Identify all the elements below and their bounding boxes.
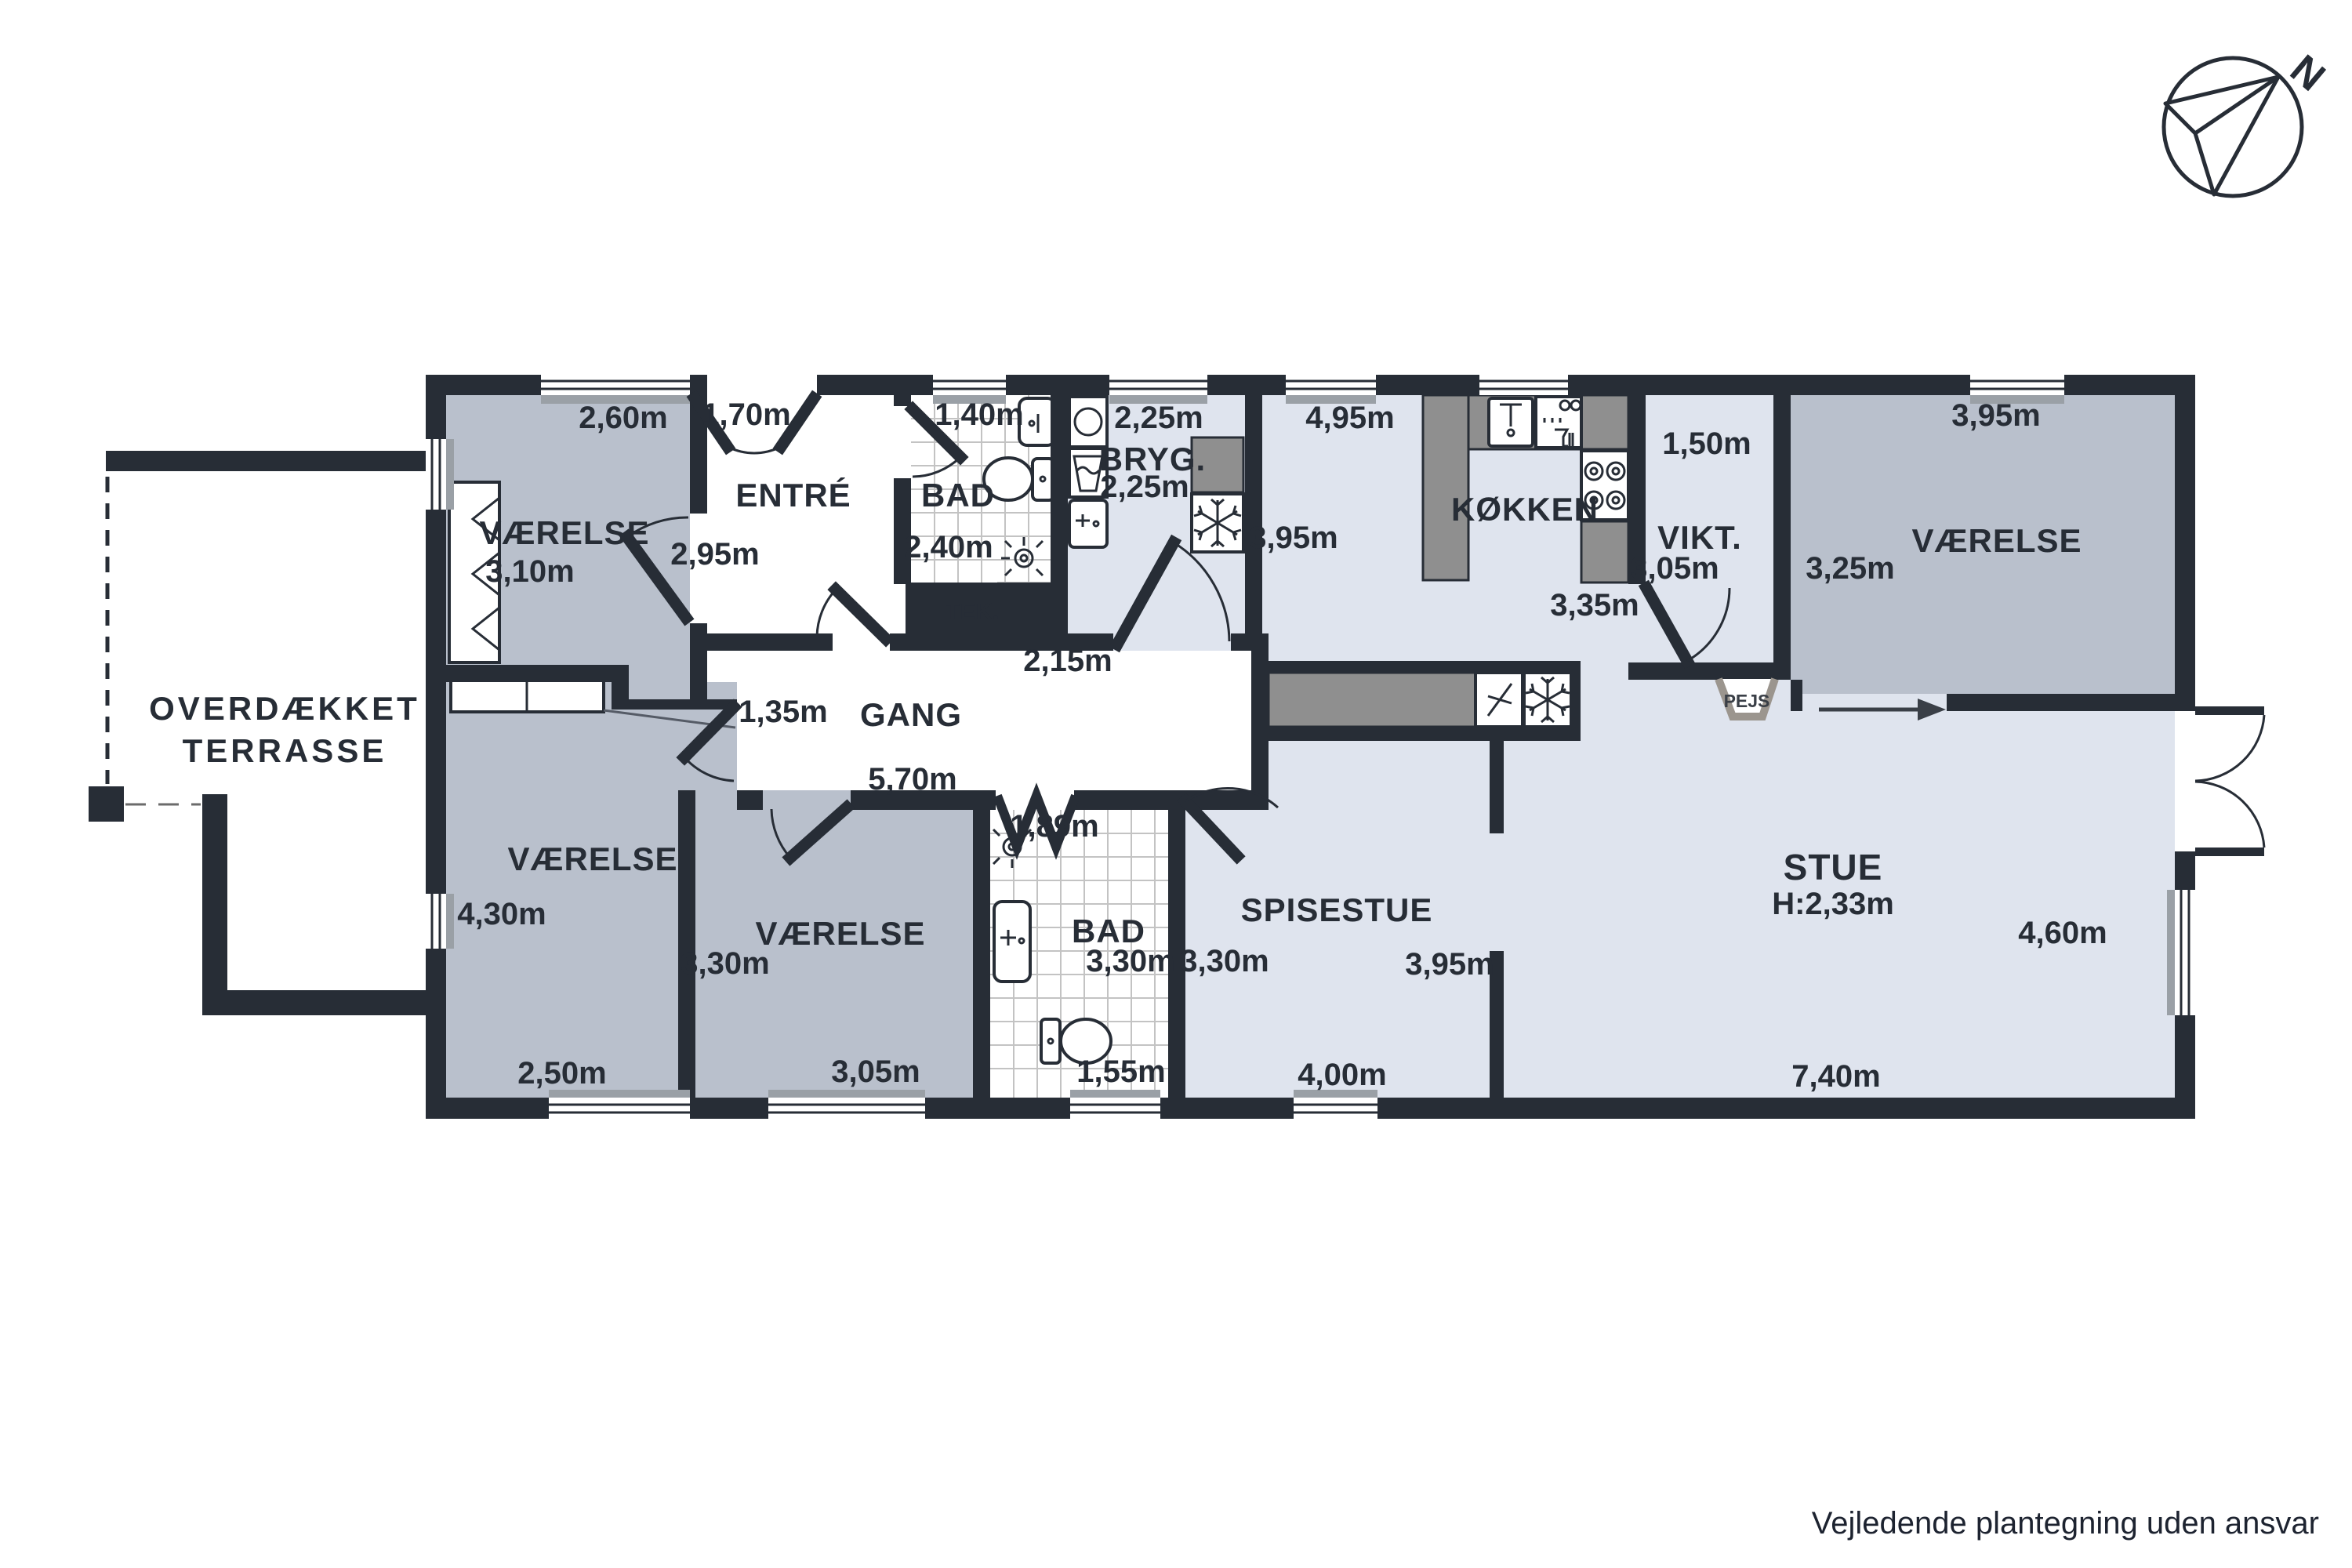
spisestue-left-dim: 3,30m xyxy=(1180,944,1269,978)
bad-bottom-h: 3,30m xyxy=(1086,944,1174,978)
counter-wall-edge xyxy=(1269,661,1581,673)
spisestue-right-dim: 3,95m xyxy=(1405,947,1494,982)
koekken-name: KØKKEN xyxy=(1451,491,1599,528)
entre-h: 2,95m xyxy=(670,537,759,572)
entre-name: ENTRÉ xyxy=(735,477,851,514)
disclaimer-text: Vejledende plantegning uden ansvar xyxy=(1812,1506,2319,1541)
kitchen-counter-below-stove xyxy=(1581,521,1628,583)
terrace-post xyxy=(89,786,124,822)
spisestue-name: SPISESTUE xyxy=(1241,891,1433,928)
dining-h: 3,95m xyxy=(1249,521,1338,555)
window-nw-top xyxy=(541,375,690,404)
bad-top-h: 2,40m xyxy=(904,530,993,564)
window-spisestue-bottom xyxy=(1294,1090,1377,1119)
vaerelse-s-name: VÆRELSE xyxy=(755,915,925,952)
bad-top-name: BAD xyxy=(921,477,995,514)
bad-top-w: 1,40m xyxy=(935,397,1023,432)
french-doors-stue xyxy=(2175,694,2264,869)
compass-north-label: N xyxy=(2281,46,2333,100)
bryg-h: 2,25m xyxy=(1100,470,1189,504)
tek-name: TEK. xyxy=(946,599,999,625)
vaerelse-ne-w: 3,95m xyxy=(1951,398,2040,433)
spisestue-bottom-dim: 4,00m xyxy=(1298,1058,1386,1092)
window-sw-left xyxy=(426,894,454,949)
stue-name: STUE xyxy=(1784,847,1883,887)
koekken-w: 3,35m xyxy=(1550,588,1639,622)
dishwasher-icon xyxy=(1536,397,1581,448)
bad-bottom-toilet-tank xyxy=(1041,1019,1060,1063)
dining-w: 4,95m xyxy=(1305,401,1394,435)
bad-top-toilet-tank xyxy=(1033,459,1054,500)
window-stue-right xyxy=(2167,890,2195,1015)
bad-bottom-w: 1,55m xyxy=(1076,1054,1165,1089)
floor-plan-page: PEJS N OVERDÆKKET TERRASSE VÆRELSE 2,60m… xyxy=(0,0,2352,1568)
floor-plan: PEJS N OVERDÆKKET TERRASSE VÆRELSE 2,60m… xyxy=(0,0,2352,1568)
gang-name: GANG xyxy=(860,696,962,733)
window-s-bottom xyxy=(768,1090,925,1119)
stue-ceiling-height: H:2,33m xyxy=(1772,887,1894,921)
kitchen-counter-left xyxy=(1423,395,1468,580)
vikt-h: 3,05m xyxy=(1630,551,1719,586)
window-bryg-top xyxy=(1109,375,1207,404)
gang-right-dim: 2,15m xyxy=(1023,644,1112,678)
vaerelse-ne-h: 3,25m xyxy=(1806,551,1894,586)
terrace-label-2: TERRASSE xyxy=(183,732,387,769)
terrace-wall-top xyxy=(106,451,446,471)
stue-bottom-dim: 7,40m xyxy=(1791,1059,1880,1094)
vaerelse-nw-name: VÆRELSE xyxy=(479,514,649,551)
vaerelse-s-h: 3,30m xyxy=(681,946,769,981)
window-sw-bottom xyxy=(549,1090,690,1119)
entre-w: 1,70m xyxy=(702,397,790,432)
terrace-wall-bottom xyxy=(202,990,446,1015)
bryg-sink-icon xyxy=(1069,500,1107,547)
vaerelse-ne-name: VÆRELSE xyxy=(1911,522,2082,559)
pejs-label: PEJS xyxy=(1724,691,1770,711)
vaerelse-s-w: 3,05m xyxy=(831,1054,920,1089)
window-bad-bottom xyxy=(1070,1090,1160,1119)
window-kitchen-top xyxy=(1479,375,1568,395)
terrace-label-1: OVERDÆKKET xyxy=(149,690,420,727)
stue-right-dim: 4,60m xyxy=(2018,916,2107,950)
vaerelse-nw-w: 2,60m xyxy=(579,401,667,435)
vikt-name: VIKT. xyxy=(1657,519,1742,556)
vikt-w: 1,50m xyxy=(1662,426,1751,461)
bryg-w: 2,25m xyxy=(1114,401,1203,435)
compass: N xyxy=(2164,46,2333,196)
sideboard-counter xyxy=(1269,673,1475,727)
vaerelse-sw-h: 4,30m xyxy=(457,897,546,931)
vaerelse-sw-w: 2,50m xyxy=(517,1056,606,1091)
bad-bottom-top-dim: 1,89m xyxy=(1010,809,1098,844)
window-dining-top xyxy=(1286,375,1376,404)
vaerelse-nw-h: 3,10m xyxy=(485,554,574,589)
window-nw-left xyxy=(426,439,454,510)
gang-left-dim: 1,35m xyxy=(739,695,827,729)
vaerelse-sw-name: VÆRELSE xyxy=(507,840,677,877)
terrace-wall-vertical xyxy=(202,794,227,1015)
gang-bottom-dim: 5,70m xyxy=(868,762,956,797)
